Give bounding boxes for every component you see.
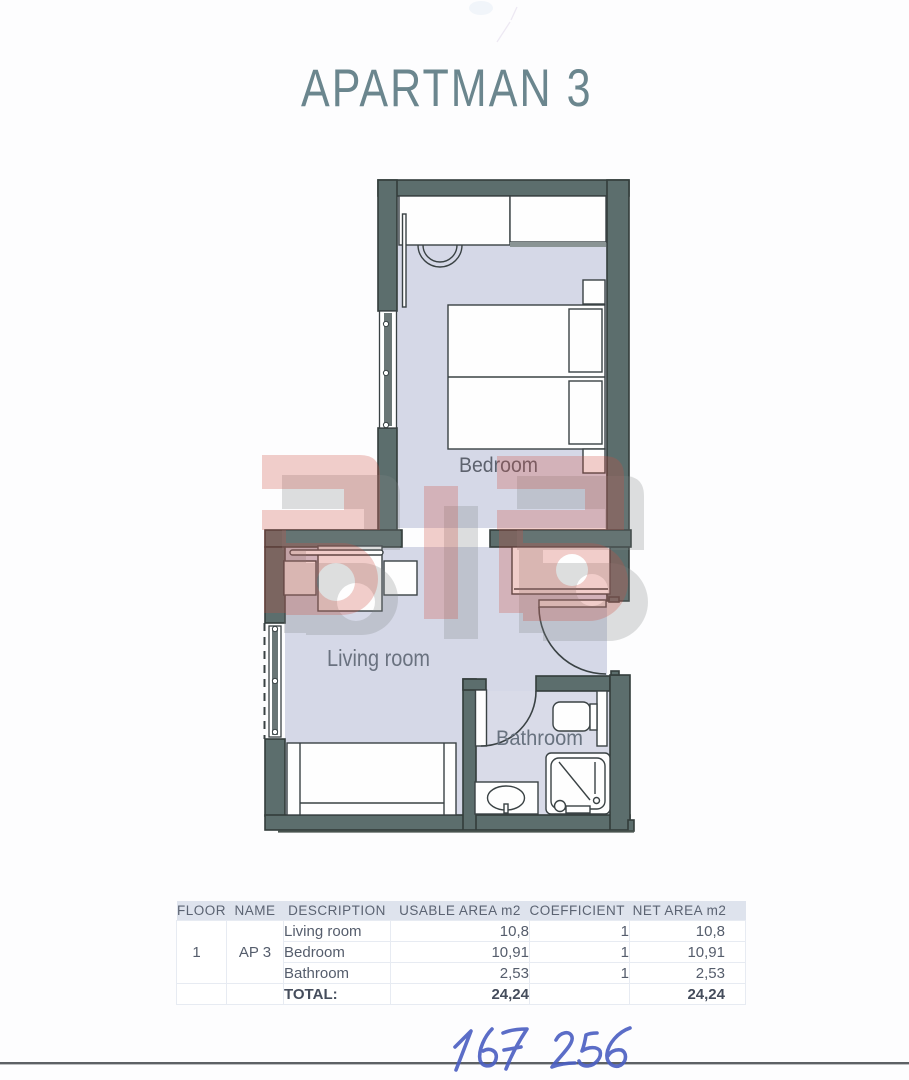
svg-text:Bathroom: Bathroom <box>496 727 583 750</box>
svg-text:Living room: Living room <box>327 645 430 671</box>
